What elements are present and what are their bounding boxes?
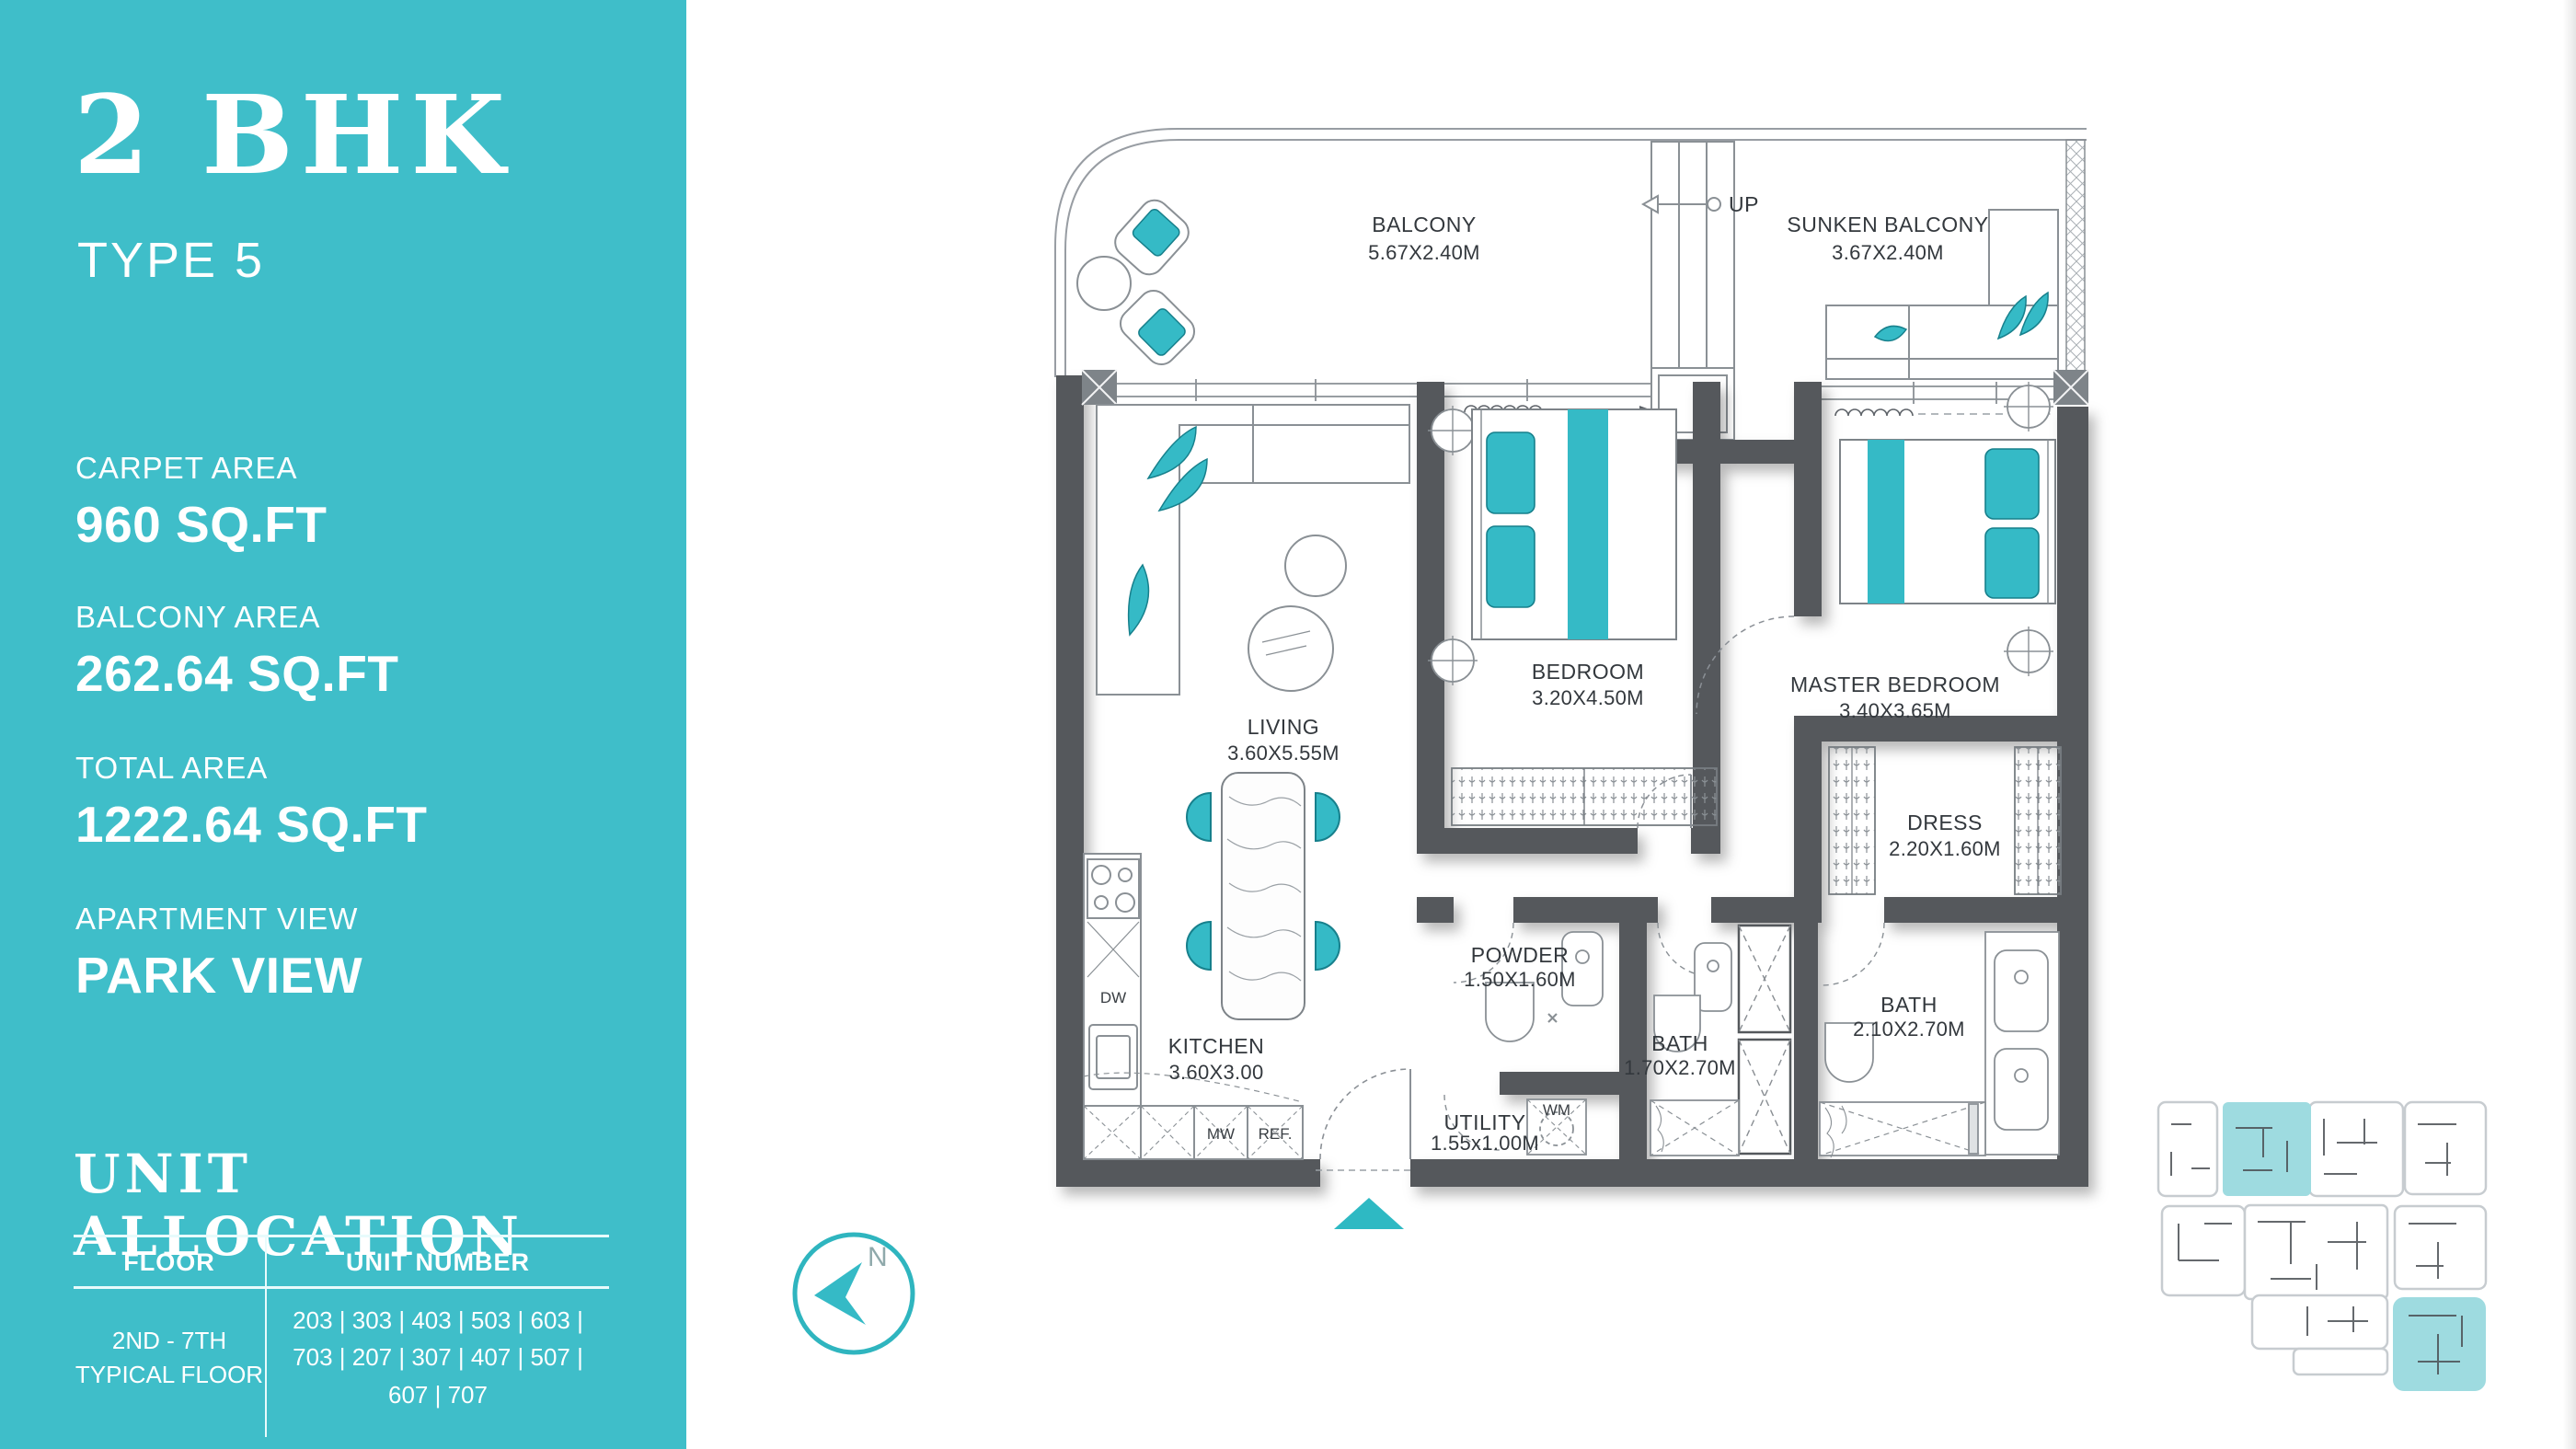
room-dims: 3.60X3.00 [1168,1061,1263,1084]
stat-value: 960 SQ.FT [75,495,327,554]
stat-label: TOTAL AREA [75,751,428,786]
room-dims: 1.50X1.60M [1464,968,1576,991]
room-label: SUNKEN BALCONY [1787,213,1988,236]
stat-carpet-area: CARPET AREA 960 SQ.FT [75,451,327,554]
unit-type-title: 2 BHK [74,81,512,190]
col-header-floor: FLOOR [74,1237,267,1286]
north-arrow-icon [814,1262,866,1325]
table-row: 2ND - 7TH TYPICAL FLOOR 203 | 303 | 403 … [74,1289,609,1437]
stat-value: PARK VIEW [75,946,362,1005]
room-label: BATH [1651,1031,1708,1055]
stat-label: APARTMENT VIEW [75,902,362,937]
room-label: MASTER BEDROOM [1790,673,2000,696]
living-furniture [1097,405,1409,695]
entrance [1316,1069,1413,1229]
stairs [1643,142,1734,440]
highlighted-unit-top [2223,1102,2311,1196]
washing-machine-label: WM [1543,1101,1570,1119]
floor-type: TYPICAL FLOOR [75,1358,263,1393]
compass: N [776,1213,932,1369]
balcony-furniture [1077,194,1201,370]
room-dims: 1.55x1.00M [1431,1132,1539,1155]
floor-cell: 2ND - 7TH TYPICAL FLOOR [74,1289,267,1437]
room-label: BALCONY [1372,213,1476,236]
room-dims: 3.40X3.65M [1839,699,1951,722]
page-edge-shade [2563,0,2576,1449]
stat-total-area: TOTAL AREA 1222.64 SQ.FT [75,751,428,854]
table-header-row: FLOOR UNIT NUMBER [74,1237,609,1289]
highlighted-unit-bottom [2393,1297,2486,1391]
stat-value: 262.64 SQ.FT [75,644,398,703]
stat-label: BALCONY AREA [75,600,398,635]
stat-label: CARPET AREA [75,451,327,486]
stat-value: 1222.64 SQ.FT [75,795,428,854]
fridge-label: REF. [1259,1125,1293,1143]
room-label: KITCHEN [1168,1034,1264,1058]
up-label: UP [1729,192,1759,216]
dining-set [1187,773,1340,1019]
room-dims: 5.67X2.40M [1368,241,1480,264]
dishwasher-label: DW [1100,989,1126,1006]
floor-plan: UP [1012,46,2144,1270]
stat-balcony-area: BALCONY AREA 262.64 SQ.FT [75,600,398,703]
unit-numbers-cell: 203 | 303 | 403 | 503 | 603 | 703 | 207 … [267,1289,609,1437]
bedroom-furniture [1428,406,1717,828]
room-label: DRESS [1907,811,1983,834]
room-dims: 1.70X2.70M [1624,1056,1736,1079]
master-bedroom-furniture [1696,382,2055,714]
room-dims: 2.10X2.70M [1853,1018,1965,1041]
service-shafts [1739,926,1790,1154]
room-label: BATH [1880,993,1938,1017]
room-label: BEDROOM [1532,660,1644,684]
north-label: N [868,1242,888,1272]
room-dims: 2.20X1.60M [1889,837,2001,860]
col-header-unit-number: UNIT NUMBER [267,1237,609,1286]
room-label: LIVING [1248,715,1319,739]
info-sidebar: 2 BHK TYPE 5 CARPET AREA 960 SQ.FT BALCO… [0,0,686,1449]
entrance-arrow-icon [1334,1198,1404,1229]
window-wall [1084,379,2057,404]
room-dims: 3.60X5.55M [1227,742,1340,765]
unit-type-subtitle: TYPE 5 [77,232,265,289]
stat-apartment-view: APARTMENT VIEW PARK VIEW [75,902,362,1005]
building-key-plan [2144,1086,2576,1449]
unit-allocation-table: FLOOR UNIT NUMBER 2ND - 7TH TYPICAL FLOO… [74,1235,609,1437]
floor-range: 2ND - 7TH [112,1324,226,1359]
hatched-wall [2066,140,2085,386]
room-dims: 3.20X4.50M [1532,686,1644,709]
room-dims: 3.67X2.40M [1832,241,1944,264]
room-label: POWDER [1471,943,1570,967]
microwave-label: MW [1207,1125,1235,1143]
